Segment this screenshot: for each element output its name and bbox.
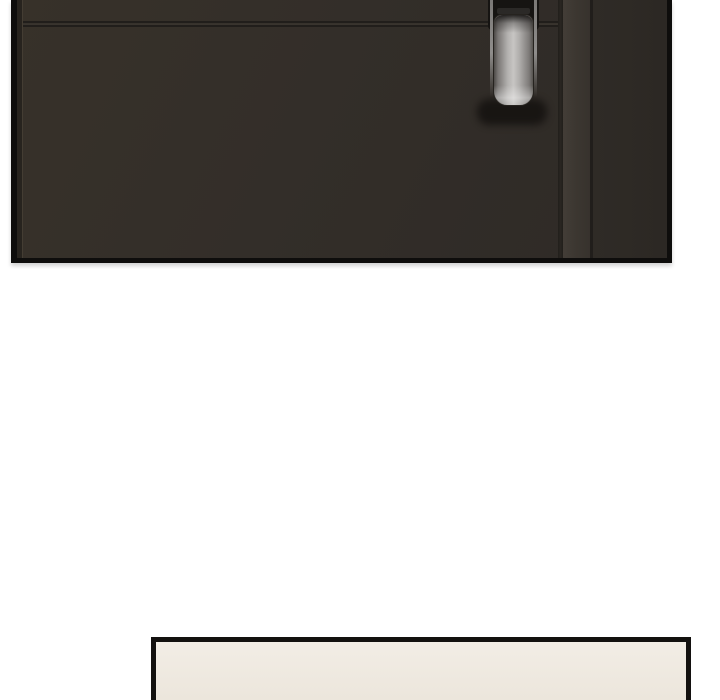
door-horizontal-seam xyxy=(23,21,560,27)
handle-bevel-right xyxy=(534,0,537,97)
door-handle-icon xyxy=(493,14,534,106)
door-frame-band xyxy=(563,0,590,258)
door-right-section xyxy=(593,0,667,258)
door-surface xyxy=(17,0,667,258)
door-left-edge xyxy=(17,0,23,258)
bottom-panel-surface xyxy=(156,642,686,700)
handle-sheen xyxy=(494,15,533,105)
panel-door xyxy=(11,0,672,263)
panel-bottom xyxy=(151,637,691,700)
comic-page xyxy=(0,0,720,700)
